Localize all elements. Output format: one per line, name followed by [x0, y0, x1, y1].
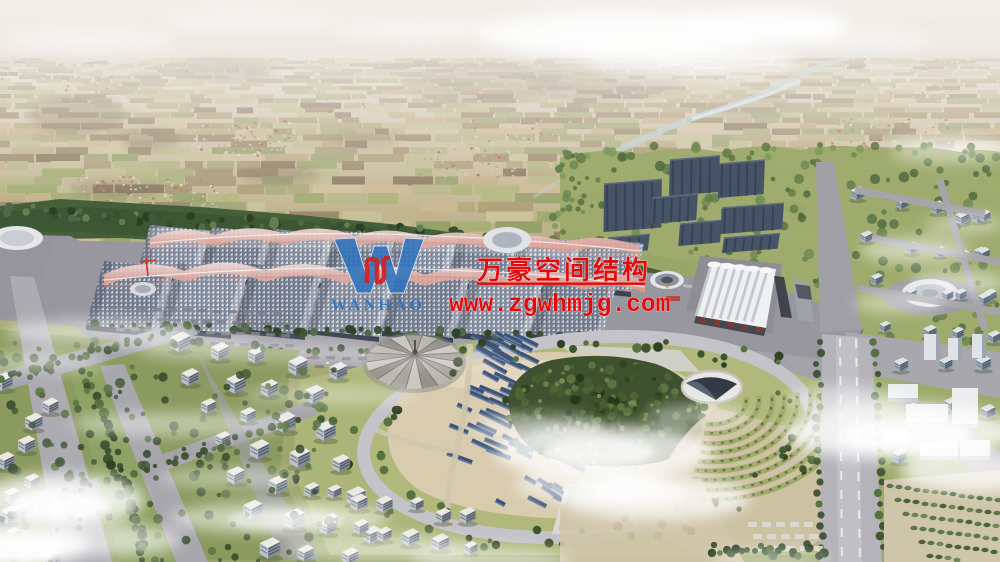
svg-text:万豪空间结构: 万豪空间结构 — [477, 255, 651, 285]
svg-text:WANHAO: WANHAO — [331, 297, 425, 314]
svg-text:www.zgwhmjg.com: www.zgwhmjg.com — [449, 292, 670, 319]
